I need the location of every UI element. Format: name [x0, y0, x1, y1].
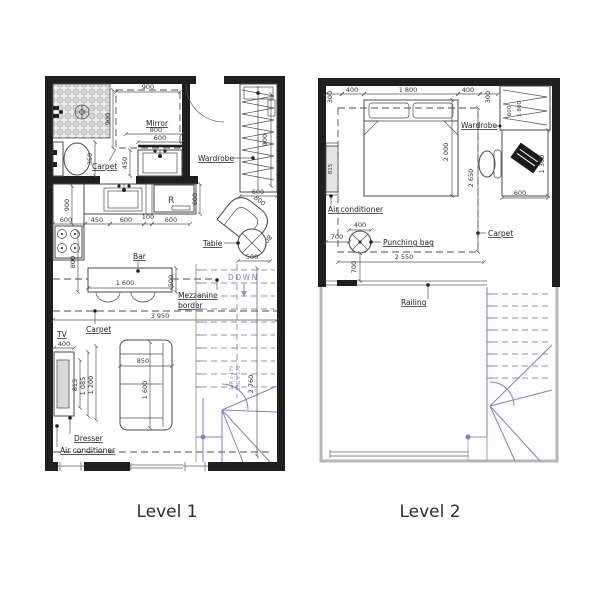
- desk-chair: [479, 150, 501, 178]
- entry-door-swing: [186, 84, 224, 122]
- fridge-letter: R: [168, 196, 174, 206]
- fridge: R: [154, 185, 194, 212]
- dim-k600-mid: 600: [120, 216, 132, 224]
- level2-plan: Railing 300 400 1 800 400 300 2 000 815: [318, 78, 560, 461]
- dim-fridge-depth: 600: [191, 193, 199, 205]
- dim-dresser-1200: 1 200: [87, 376, 95, 395]
- dim-bag-offset-v: 700: [350, 261, 358, 273]
- wardrobe-level2-label: Wardrobe: [461, 121, 498, 130]
- dim-wall-off-left: 300: [326, 91, 334, 103]
- dim-wardrobe2-length: 1 800: [517, 101, 523, 117]
- dim-wardrobe-length: 900: [261, 134, 269, 146]
- carpet-level2-label: Carpet: [488, 229, 513, 238]
- dim-room-width: 3 950: [151, 312, 170, 320]
- punching-bag-label: Punching bag: [383, 238, 434, 247]
- dim-carpet-length: 2 650: [467, 169, 475, 188]
- air-conditioner-level2-label: Air conditioner: [328, 205, 384, 214]
- floorplan-page: 900 900 350 Mirror 800 600 450 Carpet: [0, 0, 600, 600]
- dim-bar-offset: 800: [69, 256, 77, 268]
- bar-label: Bar: [133, 252, 147, 261]
- vanity-sink: [138, 146, 182, 176]
- bathroom-carpet-label: Carpet: [92, 162, 117, 171]
- dim-tv-depth: 815: [71, 379, 79, 391]
- dim-bath-carpet-width: 900: [142, 83, 154, 91]
- dim-desk-length: 1 300: [538, 155, 546, 174]
- air-conditioner-level2: 815: [326, 143, 338, 195]
- dim-vanity-depth: 450: [121, 157, 129, 169]
- dim-bed-off-right: 400: [462, 86, 474, 94]
- dim-mirror-width: 800: [150, 126, 162, 134]
- dim-wardrobe2-depth: 600: [507, 105, 513, 116]
- dim-bed-length: 2 000: [442, 143, 450, 162]
- dim-stair-height: 2 760: [247, 375, 255, 394]
- tv-unit: [57, 360, 69, 408]
- level1-caption: Level 1: [136, 502, 197, 522]
- dim-bath-carpet-height: 900: [104, 113, 112, 125]
- dim-sofa-length: 1 600: [141, 381, 149, 400]
- wardrobe-level1-label: Wardrobe: [198, 154, 235, 163]
- toilet: [53, 142, 90, 176]
- dim-k600-left: 600: [60, 216, 72, 224]
- living-carpet-label: Carpet: [86, 325, 111, 334]
- table-label: Table: [202, 239, 223, 248]
- dim-k600-right: 600: [165, 216, 177, 224]
- dim-vanity-width: 600: [154, 134, 166, 142]
- dim-tv-width: 400: [58, 340, 70, 348]
- dim-k100: 100: [142, 213, 154, 221]
- dim-bar-length: 1 600: [116, 279, 135, 287]
- dresser-label: Dresser: [74, 434, 104, 443]
- wardrobe-level1: [240, 84, 277, 192]
- dim-kitchen-length: 900: [63, 199, 71, 211]
- punching-bag: [349, 231, 371, 253]
- dim-dresser-1085: 1 085: [79, 377, 87, 396]
- tv-label: TV: [56, 330, 68, 339]
- stair-note-2: 13G x 270: [236, 366, 242, 391]
- railing-label: Railing: [401, 298, 427, 307]
- air-conditioner-level1-label: Air conditioner: [60, 446, 116, 455]
- level2-caption: Level 2: [399, 502, 460, 522]
- dim-bag-offset-h: 700: [331, 233, 343, 241]
- floorplan-drawing: 900 900 350 Mirror 800 600 450 Carpet: [0, 0, 600, 600]
- dim-ac-length: 815: [328, 163, 334, 174]
- dim-carpet-width: 2 550: [395, 253, 414, 261]
- dim-bed-off-left: 400: [346, 86, 358, 94]
- shower: [53, 84, 110, 138]
- down-label: DOWN: [228, 273, 259, 282]
- dim-bed-width: 1 800: [399, 86, 418, 94]
- dim-bag-diameter: 400: [354, 221, 366, 229]
- void-border: [321, 287, 557, 461]
- dim-bar-depth: 500: [167, 275, 175, 287]
- railing: [326, 280, 487, 286]
- dim-k450: 450: [91, 216, 103, 224]
- dim-table: 500: [246, 253, 258, 261]
- dim-desk-width: 600: [514, 189, 526, 197]
- level1-plan: 900 900 350 Mirror 800 600 450 Carpet: [45, 76, 289, 471]
- dim-wall-off-right: 300: [484, 91, 492, 103]
- dim-sofa-width: 850: [137, 357, 149, 365]
